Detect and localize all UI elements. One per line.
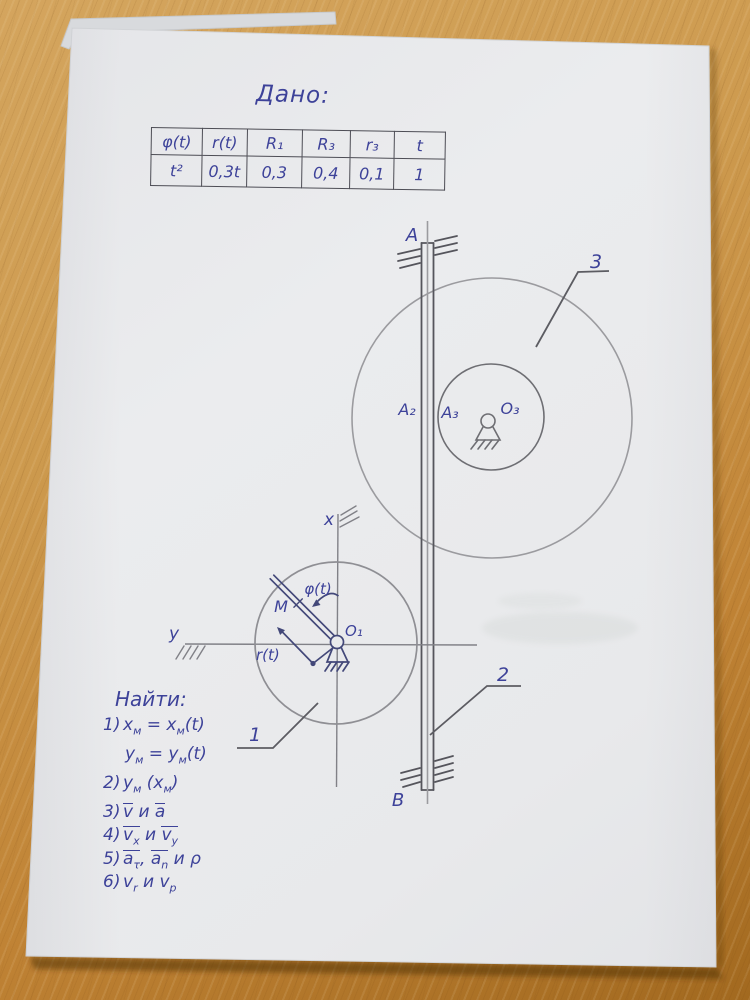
label-body3: 3: [590, 251, 602, 273]
find-item-4: 4)vx и vy: [103, 824, 207, 848]
label-a3: A₃: [440, 403, 458, 422]
photo-of-worksheet: A B 1 2 3 A₂ A₃ O₃ O₁ x y M φ(t) r(t) Да…: [0, 0, 750, 1000]
label-a2: A₂: [397, 400, 416, 419]
label-o3: O₃: [500, 399, 519, 418]
find-item-5: 5)aτ, an и ρ: [103, 848, 207, 872]
label-o1: O₁: [345, 622, 363, 640]
label-axis-y: y: [168, 624, 180, 644]
table-value-r: 0,3t: [202, 155, 247, 187]
find-item-1: 1)xм = xм(t): [103, 714, 207, 743]
find-item-3: 3)v и a: [103, 801, 207, 825]
find-item-1b: yм = yм(t): [103, 743, 207, 772]
find-title: Найти:: [115, 687, 207, 711]
table-value-R1: 0,3: [247, 156, 302, 188]
label-point-m: M: [274, 597, 288, 616]
bleed-through-smudge: [498, 593, 582, 609]
wooden-desk: { "page": { "given_label": "Дано:", "fin…: [0, 0, 750, 1000]
table-header-t: t: [394, 131, 445, 159]
table-value-r3: 0,1: [350, 158, 394, 190]
table-header-phi: φ(t): [151, 128, 202, 156]
table-header-r3: r₃: [350, 131, 394, 159]
table-value-t: 1: [394, 158, 445, 190]
find-list: Найти: 1)xм = xм(t) yм = yм(t) 2)yм (xм)…: [103, 687, 207, 900]
table-header-R1: R₁: [247, 129, 302, 157]
table-header-R3: R₃: [302, 130, 350, 158]
table-value-phi: t²: [151, 155, 202, 187]
label-angle-phi: φ(t): [304, 580, 331, 598]
table-value-R3: 0,4: [302, 157, 350, 189]
table-value-row: t² 0,3t 0,3 0,4 0,1 1: [151, 155, 445, 191]
label-body1: 1: [249, 724, 261, 746]
label-axis-x: x: [323, 510, 335, 530]
label-body2: 2: [497, 664, 509, 686]
find-item-2: 2)yм (xм): [103, 772, 207, 801]
find-item-6: 6)vr и vp: [103, 871, 207, 900]
label-radius-r: r(t): [256, 646, 280, 664]
label-guide-top: A: [405, 225, 418, 246]
given-table: φ(t) r(t) R₁ R₃ r₃ t t² 0,3t 0,3 0,4 0,1…: [150, 127, 446, 191]
given-title: Дано:: [256, 81, 331, 109]
bleed-through-smudge: [482, 612, 638, 644]
label-guide-bottom: B: [392, 790, 404, 811]
table-header-r: r(t): [202, 128, 247, 156]
